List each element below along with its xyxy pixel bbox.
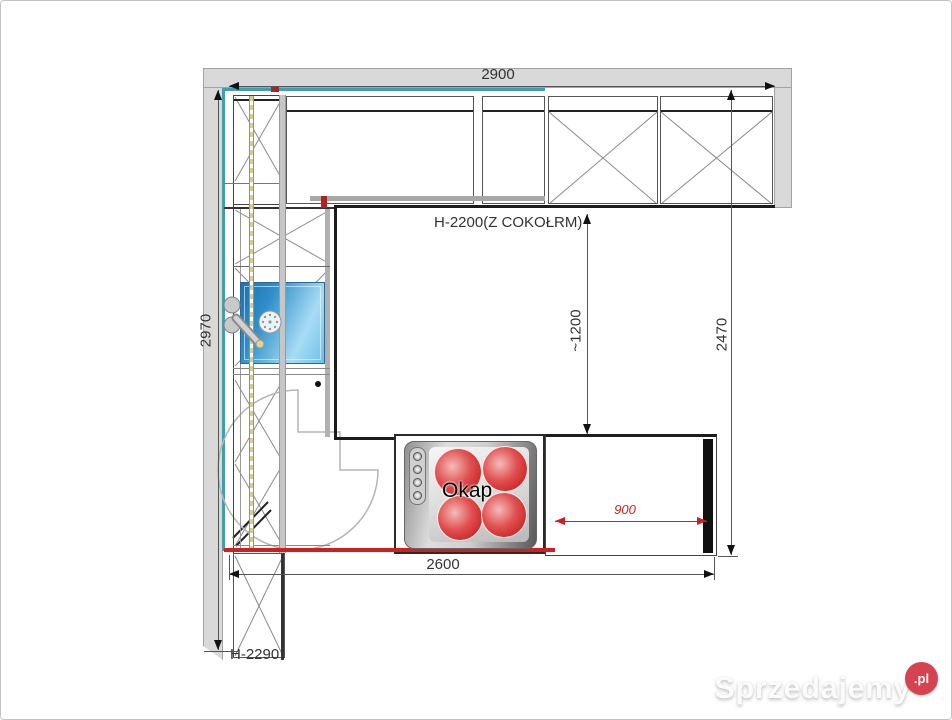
dim-label-clearance: ~1200: [568, 301, 585, 361]
watermark: Sprzedajemy .pl: [714, 670, 938, 706]
knob-icon: [413, 465, 422, 474]
end-panel: [703, 439, 713, 553]
dim-arrow: [229, 570, 239, 578]
point-mark: [315, 381, 321, 387]
watermark-text: Sprzedajemy: [714, 670, 911, 706]
dim-arrow: [214, 90, 222, 100]
dim-arrow: [727, 90, 735, 100]
upper-counter-edge: [310, 196, 545, 201]
dim-arrow: [583, 424, 591, 434]
dim-arrow: [583, 214, 591, 224]
tall-cabinet-bottom-left: [233, 553, 285, 658]
tall-cabinet-bottom-edge: [281, 553, 284, 660]
dim-arrow: [229, 82, 239, 90]
boundary-left: [334, 205, 337, 440]
dim-label-right: 2470: [714, 305, 731, 365]
knob-icon: [413, 452, 422, 461]
watermark-pl-badge: .pl: [905, 662, 938, 695]
hood-label: Okap: [442, 479, 492, 503]
boundary-top: [334, 205, 775, 208]
dim-tick: [229, 555, 230, 580]
dim-arrow: [765, 82, 775, 90]
sink-drain-icon: [259, 311, 281, 333]
faucet-icon: [224, 297, 264, 348]
tall-cabinet-label: H-2290: [230, 646, 279, 663]
dim-line-clearance: [587, 214, 588, 434]
dim-label-bottom: 2600: [393, 556, 493, 573]
socket-mark: [271, 87, 279, 92]
socket-mark: [321, 196, 327, 208]
knob-icon: [413, 491, 422, 500]
upper-cabinets-label: H-2200(Z COKOŁRM): [434, 214, 582, 231]
dim-label-left: 2970: [198, 301, 215, 361]
dim-arrow: [727, 545, 735, 555]
dim-arrow-red: [697, 517, 707, 525]
dim-tick: [714, 557, 715, 580]
knob-icon: [413, 478, 422, 487]
dim-tick: [718, 556, 738, 557]
dim-line-top: [229, 86, 775, 87]
fixture-icons: [0, 0, 952, 720]
dim-label-top: 2900: [448, 66, 548, 83]
cooktop-knob-strip: [409, 447, 426, 505]
dim-line-right: [731, 90, 732, 555]
kitchen-plan-screenshot: { "plan": { "dims": { "top": "2900", "le…: [0, 0, 952, 720]
boundary-corner: [334, 437, 396, 440]
dim-arrow: [704, 570, 714, 578]
dim-arrow-red: [555, 517, 565, 525]
dim-line-bottom: [229, 574, 714, 575]
dim-label-hood: 900: [585, 502, 665, 517]
dim-line-hood: [555, 521, 707, 522]
dim-line-left: [218, 90, 219, 650]
dim-arrow: [214, 640, 222, 650]
worktop-right: [545, 434, 717, 556]
